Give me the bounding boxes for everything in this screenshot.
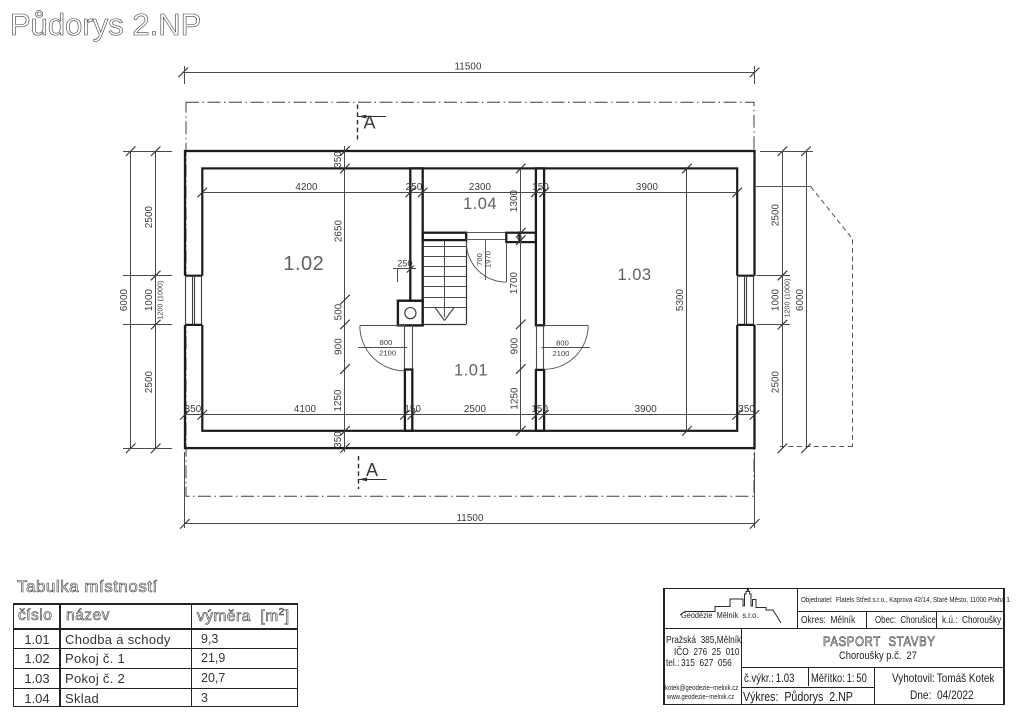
- svg-text:6000: 6000: [119, 288, 130, 311]
- svg-text:A: A: [364, 113, 376, 133]
- svg-text:1200 (1000): 1200 (1000): [785, 279, 792, 318]
- svg-text:4100: 4100: [294, 404, 317, 415]
- svg-text:1.03: 1.03: [617, 266, 651, 284]
- svg-text:800: 800: [556, 339, 569, 348]
- svg-text:350: 350: [738, 404, 755, 415]
- svg-text:2300: 2300: [469, 182, 492, 193]
- svg-text:1000: 1000: [144, 288, 155, 311]
- svg-text:4200: 4200: [295, 182, 318, 193]
- svg-text:1.01: 1.01: [454, 362, 488, 380]
- svg-text:A: A: [366, 460, 378, 480]
- svg-text:1.04: 1.04: [463, 195, 497, 213]
- svg-text:900: 900: [509, 337, 520, 354]
- svg-text:2500: 2500: [144, 205, 155, 228]
- svg-text:800: 800: [380, 338, 393, 347]
- svg-text:1970: 1970: [484, 251, 493, 268]
- svg-text:1250: 1250: [333, 389, 344, 412]
- svg-text:500: 500: [334, 303, 345, 320]
- svg-text:250: 250: [406, 182, 423, 193]
- svg-text:350: 350: [333, 431, 344, 448]
- svg-text:2500: 2500: [464, 404, 487, 415]
- svg-text:150: 150: [531, 404, 548, 415]
- svg-text:900: 900: [334, 338, 345, 355]
- svg-text:350: 350: [333, 151, 344, 168]
- svg-text:2500: 2500: [771, 203, 782, 226]
- svg-text:1300: 1300: [509, 189, 520, 212]
- svg-text:11500: 11500: [456, 513, 483, 524]
- svg-text:2100: 2100: [552, 349, 569, 358]
- svg-text:5300: 5300: [675, 288, 686, 311]
- svg-text:350: 350: [185, 404, 202, 415]
- svg-text:1700: 1700: [509, 271, 520, 294]
- svg-text:3900: 3900: [635, 404, 658, 415]
- svg-text:150: 150: [532, 182, 549, 193]
- svg-text:1000: 1000: [771, 288, 782, 311]
- svg-text:2500: 2500: [144, 370, 155, 393]
- svg-text:3900: 3900: [636, 182, 659, 193]
- svg-text:1.02: 1.02: [283, 253, 324, 275]
- svg-text:150: 150: [515, 231, 524, 244]
- svg-text:1200 (1000): 1200 (1000): [157, 281, 164, 320]
- svg-text:2100: 2100: [379, 349, 396, 358]
- svg-text:11500: 11500: [454, 62, 481, 73]
- svg-text:6000: 6000: [795, 288, 806, 311]
- svg-text:250: 250: [397, 259, 412, 269]
- svg-text:2650: 2650: [334, 219, 345, 242]
- svg-text:150: 150: [404, 404, 421, 415]
- svg-text:2500: 2500: [771, 370, 782, 393]
- svg-text:1250: 1250: [509, 387, 520, 410]
